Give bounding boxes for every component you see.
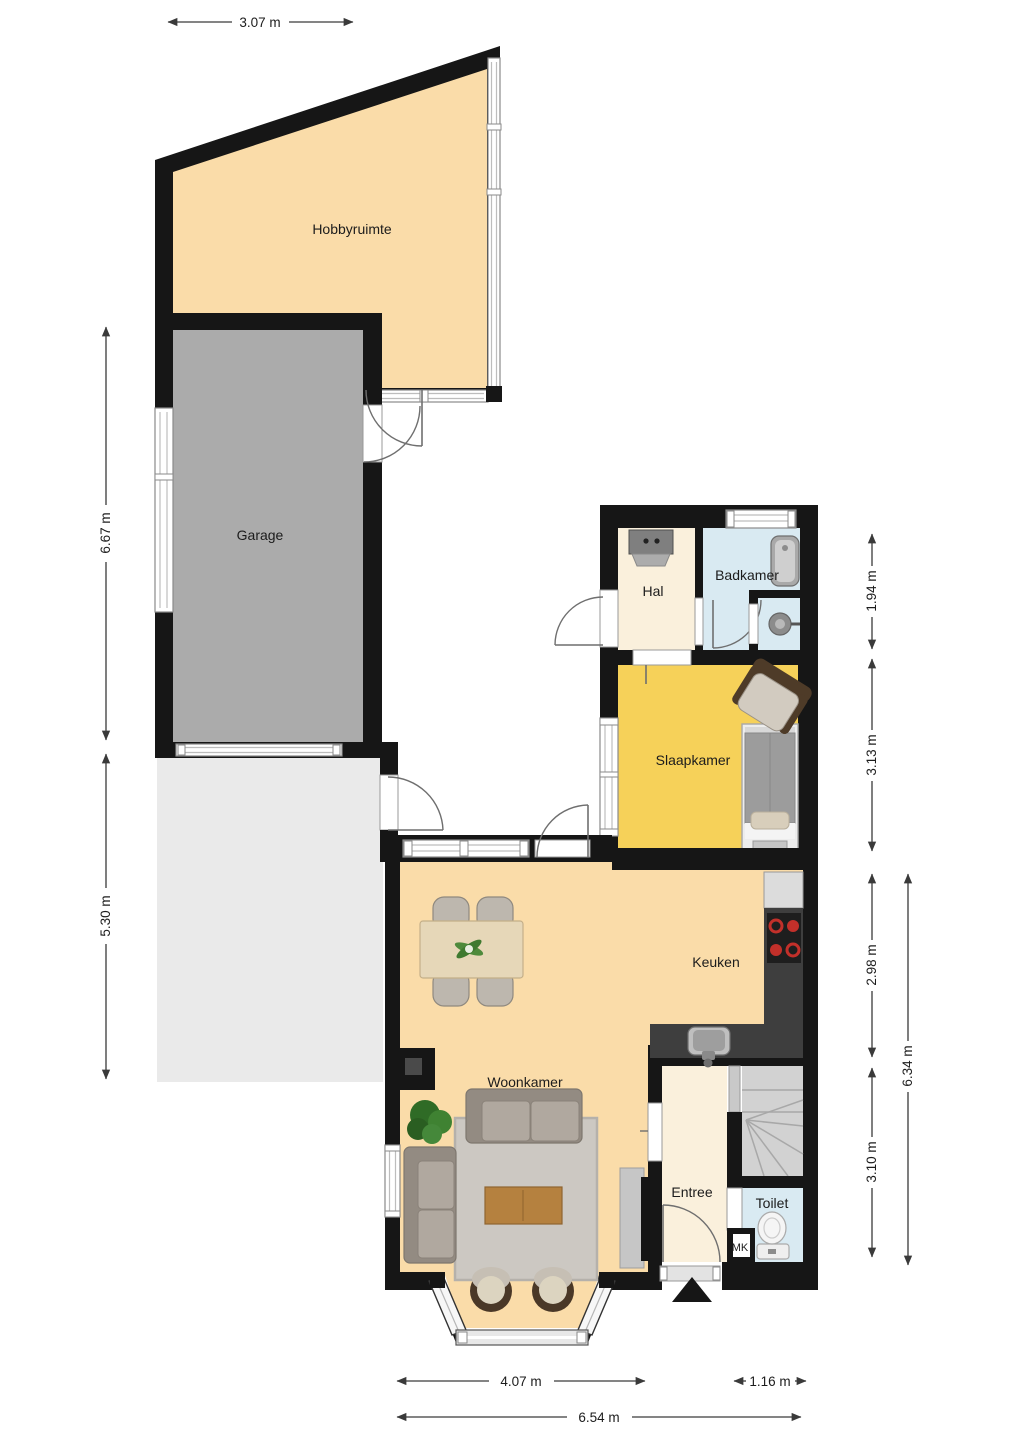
dim-patio-height: 5.30 m [98,895,113,936]
room-label-hobbyruimte: Hobbyruimte [312,221,392,237]
chimney-icon [387,1048,435,1090]
badkamer-window-icon [726,510,796,528]
tv-sideboard-icon [620,1168,650,1268]
dim-woonkamer-height: 3.10 m [864,1141,879,1182]
washer-icon [629,530,673,566]
sofa-left-icon [404,1147,456,1263]
room-label-entree: Entree [671,1184,712,1200]
fridge-counter-icon [764,872,803,908]
dim-woonkamer-width: 4.07 m [500,1374,541,1389]
room-label-meterkast: MK [732,1242,749,1254]
room-garage [155,313,422,758]
dim-bottom-total-width: 6.54 m [578,1410,619,1425]
bay-chair-right-icon [532,1267,574,1312]
dim-entree-width: 1.16 m [749,1374,790,1389]
garage-window-left-icon [155,408,173,612]
patio-area [157,744,383,1082]
dim-garage-height: 6.67 m [98,512,113,553]
dim-right-total-height: 6.34 m [900,1045,915,1086]
slaapkamer-window-left-icon [600,718,618,836]
dim-keuken-height: 2.98 m [864,944,879,985]
sofa-top-icon [466,1089,582,1143]
cooktop-icon [767,913,801,963]
dim-slaapkamer-height: 3.13 m [864,734,879,775]
room-label-hal: Hal [642,583,663,599]
dim-hobby-width: 3.07 m [239,15,280,30]
room-label-garage: Garage [237,527,284,543]
back-door-icon [535,805,590,857]
coffee-table-icon [485,1187,562,1224]
lower-house-block [385,805,818,1345]
garage-door-icon [176,744,342,756]
room-label-toilet: Toilet [756,1195,789,1211]
woonkamer-window-left-icon [385,1145,400,1217]
hal-entrance-door-icon [555,590,618,647]
bay-chair-left-icon [470,1267,512,1312]
room-label-woonkamer: Woonkamer [487,1074,563,1090]
toilet-icon [757,1212,789,1259]
floorplan-page: Hobbyruimte Garage Hal Badkamer Slaapkam… [0,0,1018,1440]
room-label-slaapkamer: Slaapkamer [656,752,731,768]
room-label-badkamer: Badkamer [715,567,779,583]
room-label-keuken: Keuken [692,954,739,970]
upper-house-block [555,505,818,870]
hobby-window-right-icon [487,58,501,390]
room-entree [662,1066,727,1262]
floorplan-drawing: Hobbyruimte Garage Hal Badkamer Slaapkam… [0,0,1018,1440]
bed-icon [742,724,798,856]
dim-badkamer-height: 1.94 m [864,570,879,611]
keuken-window-top-icon [403,840,529,857]
